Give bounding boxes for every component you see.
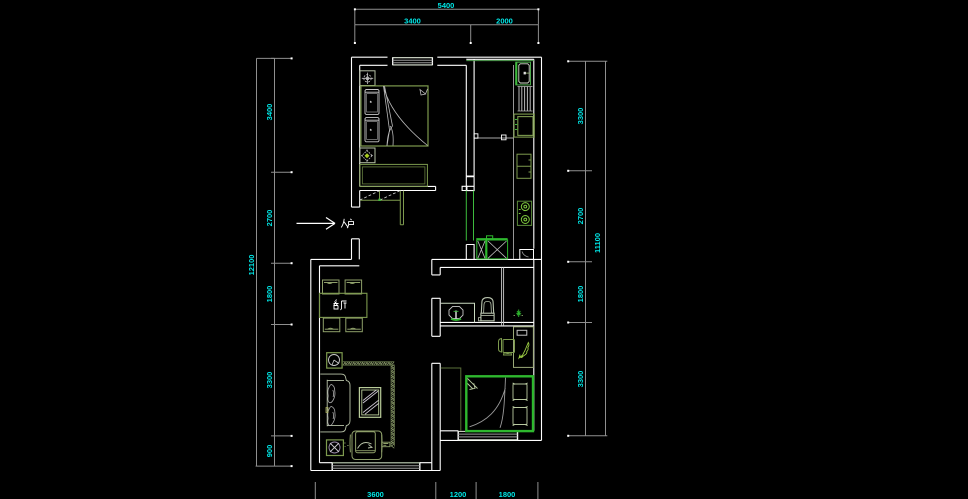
svg-text:1800: 1800 <box>576 286 585 303</box>
svg-text:1800: 1800 <box>499 490 516 499</box>
svg-text:5400: 5400 <box>438 1 455 10</box>
svg-text:2700: 2700 <box>576 208 585 225</box>
svg-text:3400: 3400 <box>404 17 421 26</box>
svg-text:2000: 2000 <box>496 17 513 26</box>
svg-text:1800: 1800 <box>265 286 274 303</box>
svg-text:2700: 2700 <box>265 210 274 227</box>
svg-text:3300: 3300 <box>576 108 585 125</box>
svg-text:3300: 3300 <box>265 372 274 389</box>
svg-text:900: 900 <box>265 445 274 458</box>
svg-text:12100: 12100 <box>247 255 256 276</box>
svg-text:1200: 1200 <box>450 490 467 499</box>
svg-text:3400: 3400 <box>265 104 274 121</box>
svg-text:3600: 3600 <box>367 490 384 499</box>
svg-text:3300: 3300 <box>576 371 585 388</box>
svg-text:11100: 11100 <box>593 233 602 253</box>
